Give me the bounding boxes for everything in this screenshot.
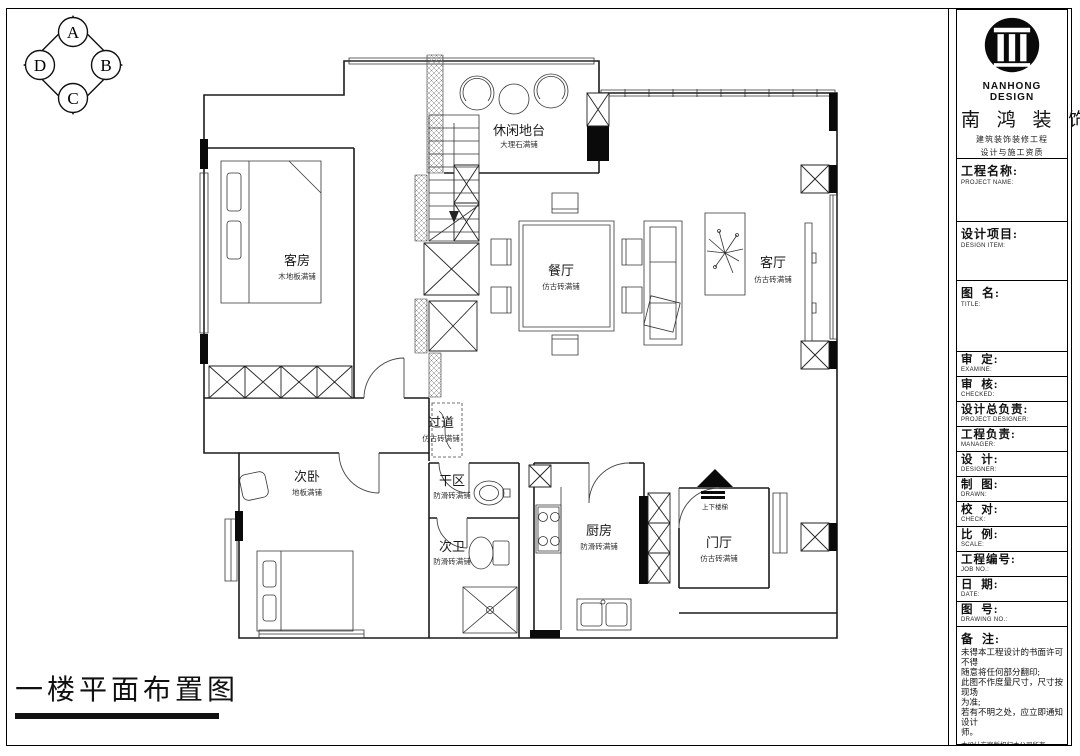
room-label-foyer: 门厅 — [706, 535, 732, 550]
entry-arrow-icon: 上下楼梯 — [697, 469, 733, 511]
field-checked: 审 核: CHECKED: — [956, 376, 1068, 402]
room-finish-guestroom: 木地板满铺 — [278, 271, 316, 281]
remark-label: 备 注: — [961, 630, 1063, 647]
room-label-living: 客厅 — [760, 255, 786, 270]
brand-line1: 建筑装饰装修工程 — [961, 134, 1063, 145]
field-job-no: 工程编号: JOB NO.: — [956, 551, 1068, 577]
field-manager: 工程负责: MANAGER: — [956, 426, 1068, 452]
remark-copyright: 本设计方案版权归本公司所有。 — [961, 739, 1063, 745]
room-label-kitchen: 厨房 — [586, 523, 612, 538]
titleblock: NANHONG DESIGN 南 鸿 装 饰 建筑装饰装修工程 设计与施工资质 … — [948, 9, 1071, 745]
room-finish-bathroom2: 防滑砖满铺 — [433, 556, 471, 566]
entry-arrow-label: 上下楼梯 — [702, 502, 729, 511]
field-project-name: 工程名称: PROJECT NAME: — [956, 158, 1068, 222]
room-label-guestroom: 客房 — [284, 253, 310, 268]
sheet-title-block: 一楼平面布置图 — [15, 668, 239, 719]
room-finish-platform: 大理石满铺 — [500, 139, 538, 149]
field-design-item: 设计项目: DESIGN ITEM: — [956, 221, 1068, 281]
field-designer: 设 计: DESIGNER: — [956, 451, 1068, 477]
room-label-corridor: 过道 — [428, 415, 454, 430]
room-finish-corridor: 仿古砖满铺 — [422, 433, 460, 443]
field-drawing-title: 图 名: TITLE: — [956, 280, 1068, 352]
compass-icon: A B C D — [21, 13, 125, 117]
remark-block: 备 注: 未得本工程设计的书面许可不得 随意将任何部分翻印; 此图不作度量尺寸，… — [956, 626, 1068, 745]
compass-d: D — [34, 56, 46, 75]
field-drawn: 制 图: DRAWN: — [956, 476, 1068, 502]
remark-line: 此图不作度量尺寸，尺寸按现场 — [961, 677, 1063, 697]
corridor-cabinet — [432, 403, 462, 457]
remark-line: 为准; — [961, 697, 1063, 707]
compass-a: A — [67, 23, 80, 42]
brand-name-latin: NANHONG DESIGN — [961, 81, 1063, 103]
field-check: 校 对: CHECK: — [956, 501, 1068, 527]
room-label-bedroom2: 次卧 — [294, 469, 320, 484]
field-examine: 审 定: EXAMINE: — [956, 351, 1068, 377]
room-labels: 休闲地台 大理石满铺 客房 木地板满铺 餐厅 仿古砖满铺 客厅 仿古砖满铺 过道… — [278, 123, 792, 566]
room-finish-dining: 仿古砖满铺 — [542, 281, 580, 291]
room-label-bathroom2: 次卫 — [439, 539, 465, 554]
brand-line2: 设计与施工资质 — [961, 147, 1063, 158]
remark-line: 师。 — [961, 727, 1063, 737]
compass-c: C — [67, 89, 78, 108]
room-finish-bedroom2: 地板满铺 — [292, 487, 322, 497]
room-finish-dryarea: 防滑砖满铺 — [433, 490, 471, 500]
compass-b: B — [100, 56, 111, 75]
room-label-dryarea: 干区 — [439, 473, 465, 488]
brand-name-cn: 南 鸿 装 饰 — [961, 105, 1063, 132]
room-finish-living: 仿古砖满铺 — [754, 274, 792, 284]
room-finish-foyer: 仿古砖满铺 — [700, 553, 738, 563]
remark-line: 未得本工程设计的书面许可不得 — [961, 647, 1063, 667]
sheet-title: 一楼平面布置图 — [15, 668, 239, 708]
brand-block: NANHONG DESIGN 南 鸿 装 饰 建筑装饰装修工程 设计与施工资质 … — [956, 9, 1068, 159]
remark-line: 若有不明之处，应立即通知设计 — [961, 707, 1063, 727]
brand-logo-icon — [983, 16, 1041, 74]
title-underline — [15, 713, 219, 719]
drawing-sheet: A B C D — [6, 8, 1072, 746]
field-scale: 比 例: SCALE: — [956, 526, 1068, 552]
remark-line: 随意将任何部分翻印; — [961, 667, 1063, 677]
floor-plan: 上下楼梯 休闲地台 大理石满铺 客房 木地板满铺 餐厅 仿古砖满铺 客厅 仿古砖… — [189, 53, 889, 653]
room-finish-kitchen: 防滑砖满铺 — [580, 541, 618, 551]
room-label-platform: 休闲地台 — [493, 123, 545, 138]
field-date: 日 期: DATE: — [956, 576, 1068, 602]
room-label-dining: 餐厅 — [548, 263, 574, 278]
field-drawing-no: 图 号: DRAWING NO.: — [956, 601, 1068, 627]
interior-walls — [204, 93, 837, 638]
field-project-designer: 设计总负责: PROJECT DESIGNER: — [956, 401, 1068, 427]
